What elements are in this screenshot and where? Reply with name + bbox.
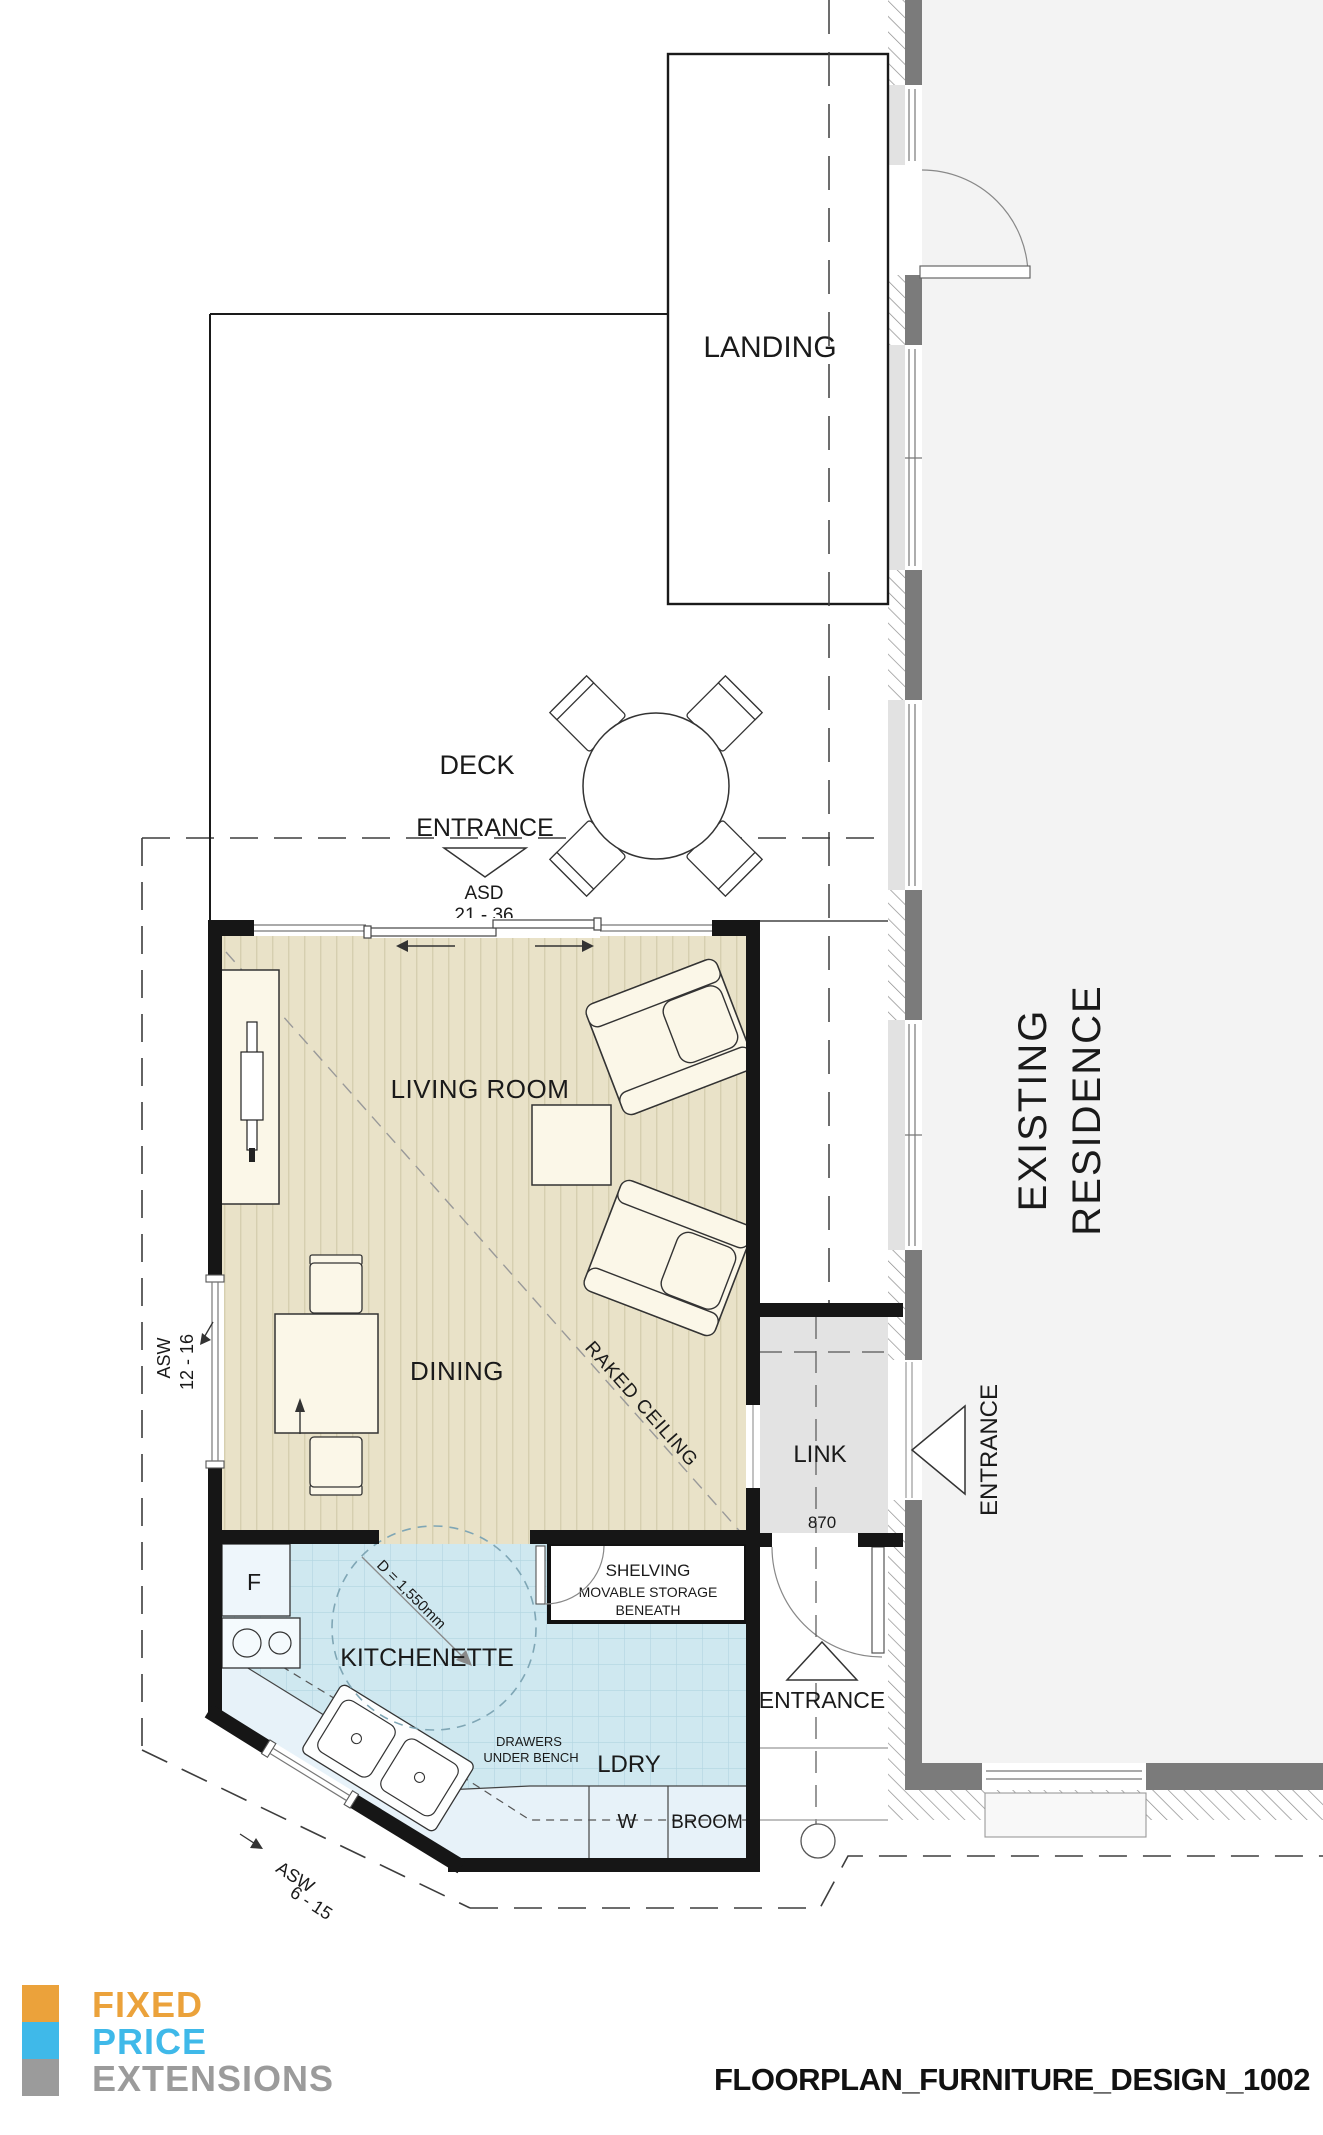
dining-chair xyxy=(310,1437,362,1495)
landing-label: LANDING xyxy=(703,331,836,364)
drawing-title: FLOORPLAN_FURNITURE_DESIGN_1002 xyxy=(560,2062,1310,2098)
shelving-label-2: MOVABLE STORAGE xyxy=(579,1584,718,1600)
left-window xyxy=(200,1275,224,1468)
asw-left-label: ASW xyxy=(154,1337,174,1378)
washer-label: W xyxy=(618,1811,637,1833)
kitchenette-label: KITCHENETTE xyxy=(340,1644,514,1672)
residence-entrance-opening xyxy=(888,1360,922,1500)
coffee-table xyxy=(532,1105,611,1185)
top-wall-glazing xyxy=(254,918,712,938)
link-label: LINK xyxy=(793,1441,846,1468)
floorplan-drawing: ENTRANCE EXISTING RESIDENCE LANDING DECK… xyxy=(0,0,1323,2135)
asw-left-range: 12 - 16 xyxy=(177,1334,197,1390)
residence-entrance-label: ENTRANCE xyxy=(976,1384,1003,1516)
living-dining-room: RAKED CEILING LIVING ROOM DINING xyxy=(219,936,756,1544)
link-door-width-label: 870 xyxy=(808,1513,836,1532)
deck-entrance-label: ENTRANCE xyxy=(416,814,554,842)
shelving-label-1: SHELVING xyxy=(606,1561,691,1580)
deck-label: DECK xyxy=(439,750,514,780)
link-door-arc xyxy=(772,1547,882,1657)
logo-square-gray xyxy=(22,2059,59,2096)
sliding-door-panel xyxy=(368,928,496,936)
dining-chair xyxy=(310,1255,362,1313)
existing-residence-label-2: RESIDENCE xyxy=(1065,984,1109,1235)
dining-label: DINING xyxy=(410,1356,504,1386)
link-door-leaf xyxy=(872,1547,884,1653)
cooktop xyxy=(222,1618,300,1668)
logo-text-fixed: FIXED xyxy=(92,1986,203,2023)
living-room-label: LIVING ROOM xyxy=(391,1074,570,1104)
entrance-corridor: ENTRANCE xyxy=(759,1547,888,1858)
shelving-unit: SHELVING MOVABLE STORAGE BENEATH xyxy=(549,1544,746,1622)
dining-table xyxy=(275,1314,378,1433)
ldry-label: LDRY xyxy=(597,1751,661,1778)
deck-dining-set xyxy=(550,676,762,896)
residence-bottom-window xyxy=(982,1763,1146,1837)
broom-label: BROOM xyxy=(671,1812,743,1833)
tv-unit xyxy=(219,970,279,1204)
asd-label: ASD xyxy=(464,883,503,904)
rear-entrance-arrow xyxy=(787,1642,857,1680)
deck-entrance-arrow xyxy=(444,848,526,877)
fridge-label: F xyxy=(247,1569,261,1595)
existing-residence: ENTRANCE EXISTING RESIDENCE xyxy=(888,0,1323,1837)
landing: LANDING xyxy=(668,54,888,604)
downpipe xyxy=(801,1824,835,1858)
drawers-label-1: DRAWERS xyxy=(496,1734,562,1749)
logo-text-extensions: EXTENSIONS xyxy=(92,2060,334,2097)
drawers-label-2: UNDER BENCH xyxy=(483,1750,578,1765)
sliding-door-panel xyxy=(493,920,598,928)
boundary-arrow xyxy=(250,1838,263,1849)
deck-table xyxy=(583,713,729,859)
link: LINK 870 xyxy=(760,1317,888,1533)
logo-square-blue xyxy=(22,2022,59,2059)
logo-text-price: PRICE xyxy=(92,2023,207,2060)
floorplan-canvas: ENTRANCE EXISTING RESIDENCE LANDING DECK… xyxy=(0,0,1323,2135)
rear-entrance-label: ENTRANCE xyxy=(759,1687,886,1713)
existing-residence-label-1: EXISTING xyxy=(1011,1009,1055,1212)
logo-square-orange xyxy=(22,1985,59,2022)
shelving-label-3: BENEATH xyxy=(615,1602,680,1618)
